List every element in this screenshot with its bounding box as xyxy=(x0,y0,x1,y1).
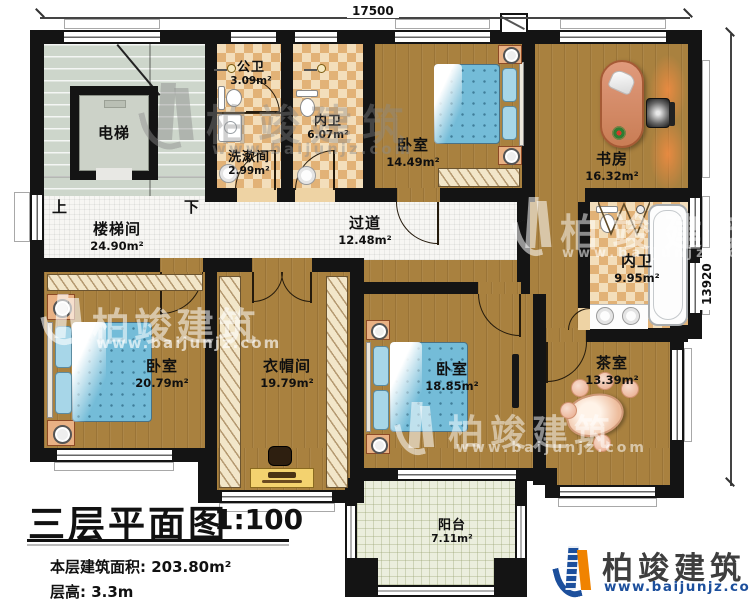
toilet-icon xyxy=(296,90,318,97)
room-area: 13.39m² xyxy=(585,373,638,387)
wall xyxy=(533,294,546,485)
room-area: 19.79m² xyxy=(260,376,313,390)
watermark-logo-icon xyxy=(143,83,201,153)
dresser-items xyxy=(262,480,302,483)
room-name: 内卫 xyxy=(307,110,348,129)
window-sill xyxy=(558,498,657,507)
sink-icon xyxy=(622,307,640,325)
room-name: 电梯 xyxy=(98,122,130,143)
wall xyxy=(363,44,375,195)
monitor-stand xyxy=(669,102,675,126)
door-opening xyxy=(160,258,203,272)
room-name: 内卫 xyxy=(614,250,659,271)
room-area: 7.11m² xyxy=(431,533,472,545)
stool-icon xyxy=(268,446,292,466)
room-label-washroom: 洗漱间 2.99m² xyxy=(228,146,270,177)
room-area: 20.79m² xyxy=(135,376,188,390)
elevator-vent xyxy=(104,100,126,108)
window-sill xyxy=(684,348,692,442)
room-area: 18.85m² xyxy=(425,379,478,393)
door-opening xyxy=(397,188,440,202)
toilet-icon xyxy=(218,86,225,110)
room-name: 公卫 xyxy=(230,56,271,75)
window xyxy=(295,30,337,44)
title-underline xyxy=(27,539,289,542)
door-opening xyxy=(546,328,586,342)
lamp-stem xyxy=(304,69,317,71)
room-name: 过道 xyxy=(338,212,391,233)
room-name: 茶室 xyxy=(585,352,638,373)
pillow xyxy=(55,372,72,414)
wall xyxy=(585,188,702,202)
stairs-up-label: 上 xyxy=(52,196,67,217)
room-label-inner-bath-small: 内卫 6.07m² xyxy=(307,110,348,141)
monitor-icon xyxy=(646,98,670,128)
closet-icon xyxy=(47,274,203,291)
window-sill xyxy=(14,192,30,242)
door-leaf xyxy=(274,150,276,190)
window-sill xyxy=(702,60,710,178)
window xyxy=(560,485,655,498)
dresser-icon xyxy=(250,468,314,488)
lamp-icon xyxy=(503,47,520,64)
room-label-corridor: 过道 12.48m² xyxy=(338,212,391,247)
dimension-right-label: 13920 xyxy=(700,258,714,310)
window xyxy=(222,490,332,503)
window-sill xyxy=(64,19,160,29)
window-sill xyxy=(395,19,490,29)
window xyxy=(560,30,666,44)
room-name: 衣帽间 xyxy=(260,355,313,376)
balcony-railing xyxy=(378,585,494,597)
rug-glow xyxy=(650,118,686,190)
tv-icon xyxy=(512,354,519,408)
balcony-railing xyxy=(345,506,357,558)
window xyxy=(64,30,160,44)
door-leaf xyxy=(333,150,335,190)
floor-wood-tearoom xyxy=(545,448,670,485)
headboard xyxy=(519,62,524,146)
pillow xyxy=(502,68,517,102)
room-area: 9.95m² xyxy=(614,271,659,285)
closet-icon xyxy=(438,168,520,187)
room-name: 卧室 xyxy=(425,358,478,379)
brand-logo-icon xyxy=(556,546,596,600)
bed-sheet-fold xyxy=(434,64,462,144)
shower-head-icon xyxy=(636,205,645,214)
stairs-down-label: 下 xyxy=(184,196,199,217)
stool-icon xyxy=(593,434,611,452)
window-sill xyxy=(560,19,666,29)
window xyxy=(30,195,44,240)
room-area: 24.90m² xyxy=(90,239,143,253)
balcony-sliding-door xyxy=(398,468,516,481)
watermark-logo-icon xyxy=(44,294,88,348)
door-opening xyxy=(237,188,277,202)
room-area: 3.09m² xyxy=(230,75,271,87)
window xyxy=(57,448,172,462)
brand-website: www.baijunjz.com xyxy=(604,579,750,595)
pillow xyxy=(502,106,517,140)
room-area: 16.32m² xyxy=(585,169,638,183)
lamp-icon xyxy=(371,323,388,340)
wall xyxy=(515,478,527,506)
lamp-stem xyxy=(214,69,227,71)
title-underline-shadow xyxy=(27,544,289,546)
room-name: 楼梯间 xyxy=(90,218,143,239)
wall xyxy=(30,30,44,462)
lamp-icon xyxy=(371,437,388,454)
washing-machine-drum xyxy=(224,121,237,134)
room-name: 卧室 xyxy=(135,355,188,376)
room-area: 14.49m² xyxy=(386,155,439,169)
window xyxy=(395,30,490,44)
balcony-railing xyxy=(515,506,527,558)
plant-icon xyxy=(611,125,627,141)
wall xyxy=(205,44,217,188)
room-area: 12.48m² xyxy=(338,233,391,247)
room-area: 2.99m² xyxy=(228,165,270,177)
stool-icon xyxy=(560,402,577,419)
door-opening xyxy=(252,258,312,272)
room-label-stairwell: 楼梯间 24.90m² xyxy=(90,218,143,253)
sink-icon xyxy=(596,307,614,325)
pillow xyxy=(373,346,389,386)
room-name: 卧室 xyxy=(386,134,439,155)
room-label-study: 书房 16.32m² xyxy=(585,148,638,183)
door-leaf xyxy=(519,294,521,337)
wall xyxy=(281,44,293,188)
room-label-balcony: 阳台 7.11m² xyxy=(431,514,472,545)
room-label-inner-bath-large: 内卫 9.95m² xyxy=(614,250,659,285)
door-leaf xyxy=(310,272,312,303)
watermark-logo-icon xyxy=(398,402,440,458)
dimension-top-label: 17500 xyxy=(347,4,399,18)
room-label-cloakroom: 衣帽间 19.79m² xyxy=(260,355,313,390)
pillow xyxy=(373,390,389,430)
room-name: 阳台 xyxy=(431,514,472,533)
elevator-door-opening xyxy=(96,168,132,180)
window xyxy=(688,198,702,247)
door-leaf xyxy=(252,272,254,303)
room-label-bedroom-left: 卧室 20.79m² xyxy=(135,355,188,390)
wardrobe-icon xyxy=(326,276,348,488)
window-sill xyxy=(54,462,174,471)
sink-icon xyxy=(297,166,316,185)
wardrobe-icon xyxy=(219,276,241,488)
room-name: 书房 xyxy=(585,148,638,169)
dimension-line-right xyxy=(730,34,732,486)
room-label-elevator: 电梯 xyxy=(98,122,130,143)
watermark-logo-icon xyxy=(516,197,556,259)
headboard xyxy=(366,342,371,432)
room-name: 洗漱间 xyxy=(228,146,270,165)
door-leaf xyxy=(546,342,548,383)
floor-height-line: 层高: 3.3m xyxy=(50,581,133,602)
room-label-bedroom-top: 卧室 14.49m² xyxy=(386,134,439,169)
window xyxy=(670,350,684,440)
wall xyxy=(350,258,364,503)
room-label-public-bath: 公卫 3.09m² xyxy=(230,56,271,87)
wall xyxy=(494,558,527,597)
door-leaf xyxy=(246,111,280,113)
wall xyxy=(345,558,378,597)
room-label-tea-room: 茶室 13.39m² xyxy=(585,352,638,387)
floor-plan: 17500 13920 楼梯间 24.90m² 电梯 上 下 公卫 3.09m²… xyxy=(0,0,750,614)
door-leaf xyxy=(437,202,439,245)
room-area: 6.07m² xyxy=(307,129,348,141)
room-label-bedroom-middle: 卧室 18.85m² xyxy=(425,358,478,393)
window xyxy=(231,30,276,44)
toilet-bowl xyxy=(226,89,242,107)
lamp-icon xyxy=(53,425,72,444)
scale-label: 1:100 xyxy=(214,503,303,536)
dresser-items xyxy=(268,472,296,478)
floor-area-line: 本层建筑面积: 203.80m² xyxy=(50,556,231,577)
window-sill xyxy=(702,196,710,248)
ceiling-lamp-icon xyxy=(317,64,326,73)
door-opening xyxy=(295,188,335,202)
lamp-icon xyxy=(503,148,520,165)
door-opening xyxy=(478,282,521,294)
